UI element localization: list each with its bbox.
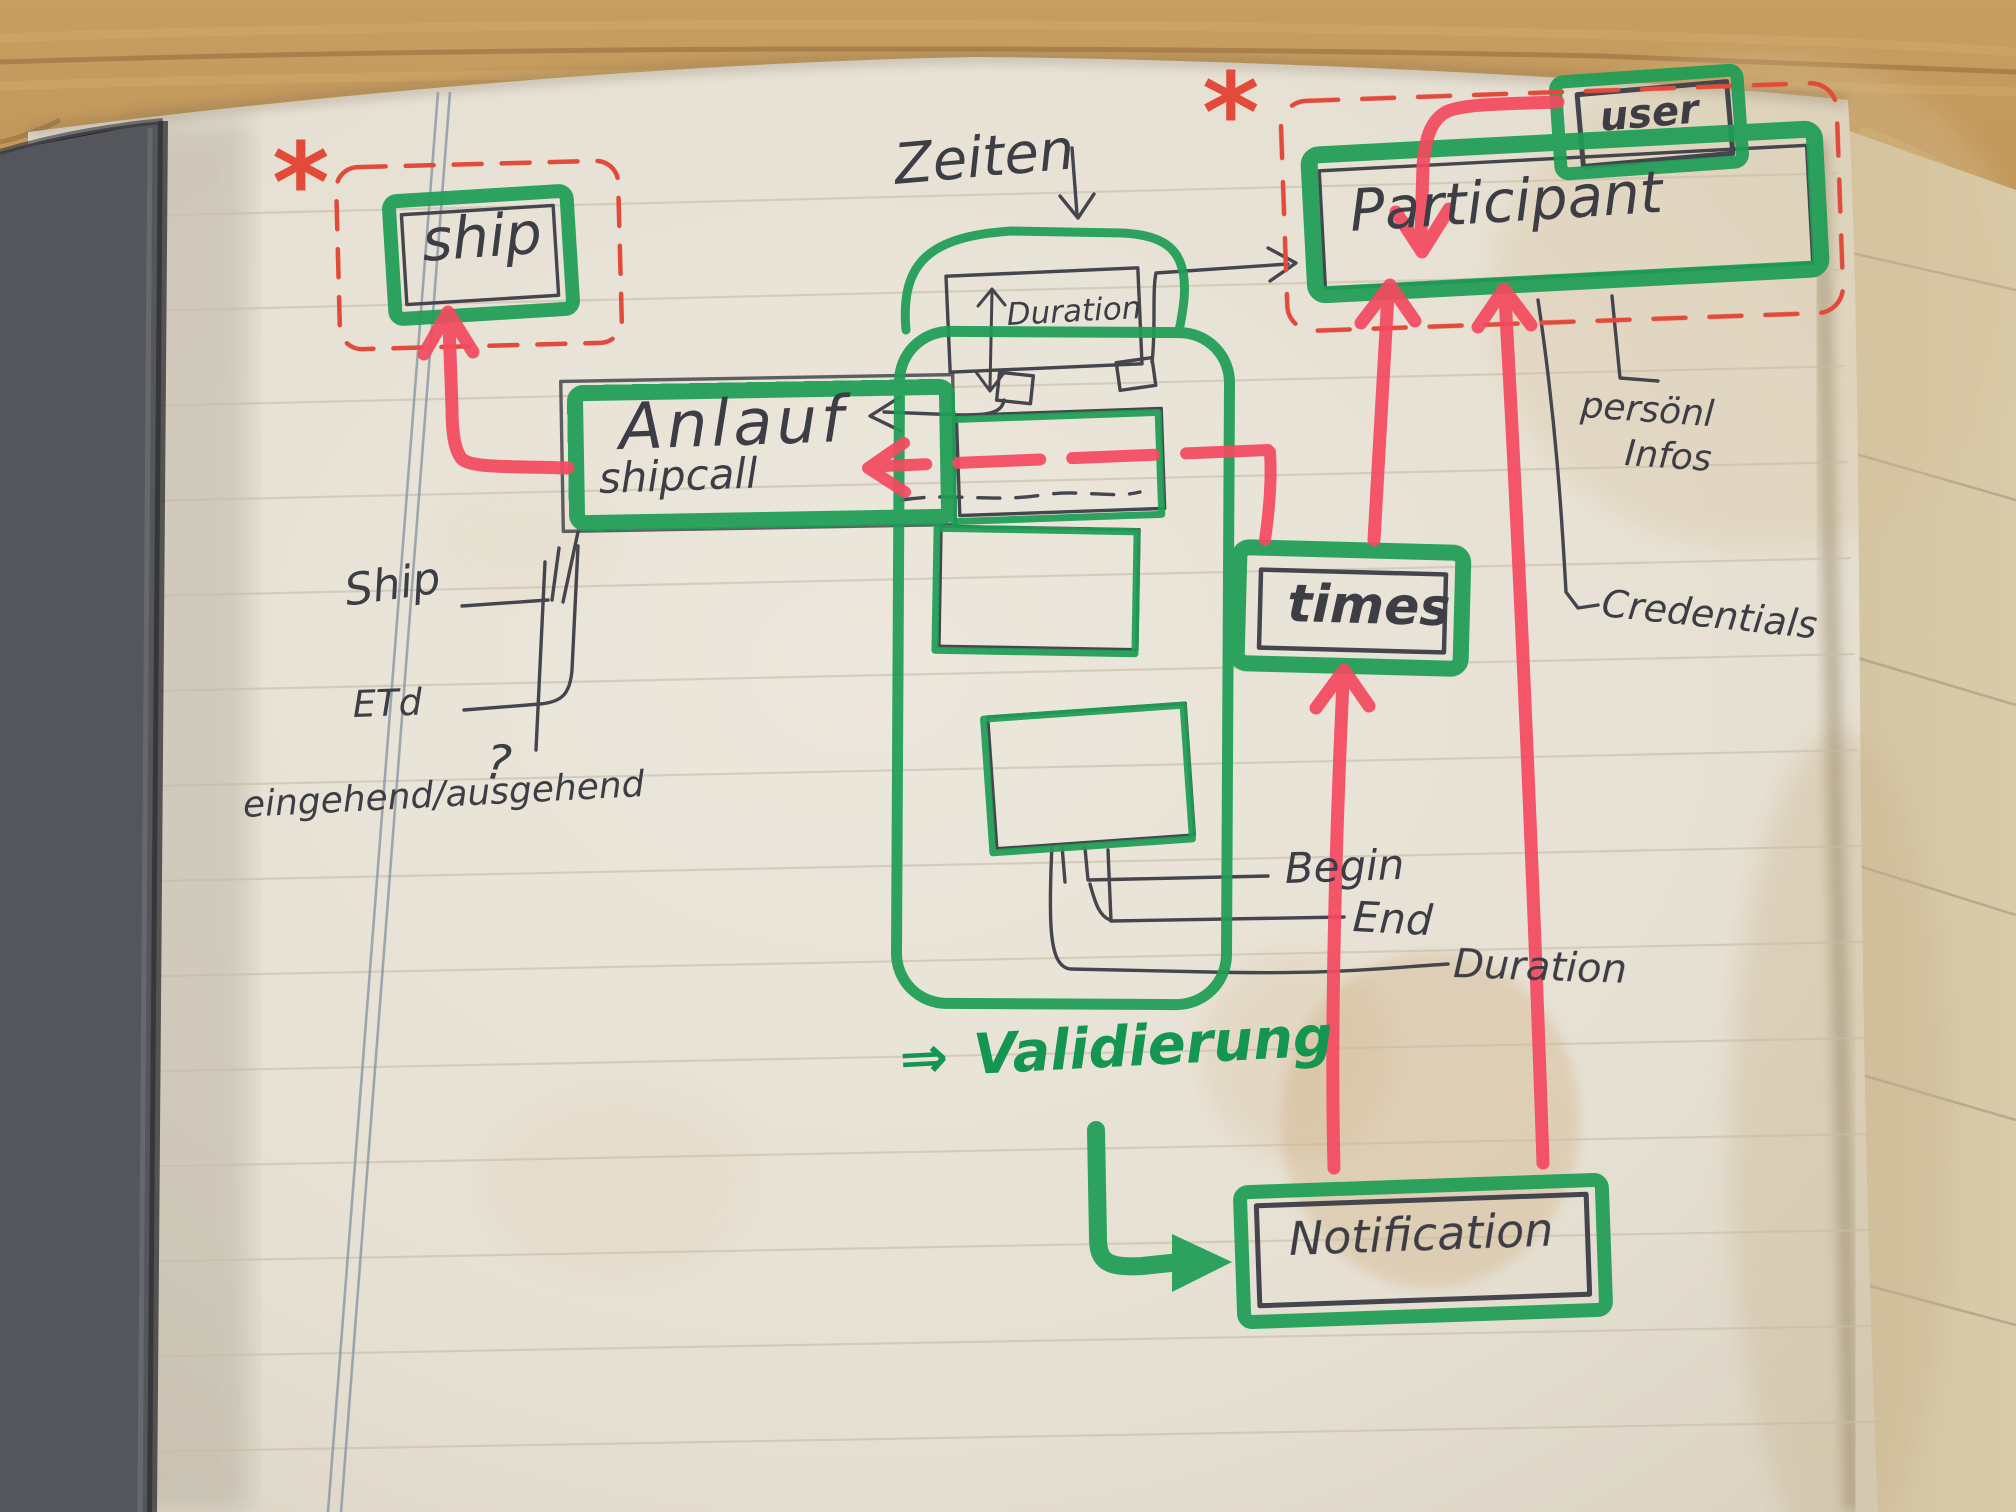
asterisk-right: * <box>1202 58 1260 168</box>
ship-entity-label: ship <box>420 204 544 270</box>
asterisk-left: * <box>272 128 330 238</box>
notebook-photo: ship Anlauf shipcall Participant user ti… <box>0 0 2016 1512</box>
notification-entity-label: Notification <box>1288 1207 1554 1262</box>
persoenl-label: persönl <box>1579 388 1715 433</box>
participant-entity-label: Participant <box>1348 163 1664 240</box>
duration-box-label: Duration <box>1006 293 1142 331</box>
zeiten-label: Zeiten <box>892 122 1076 193</box>
question-mark-label: ? <box>483 738 513 788</box>
ship-attr-label: Ship <box>342 557 443 614</box>
notebook-cover <box>0 121 163 1512</box>
begin-attr-label: Begin <box>1284 844 1405 890</box>
infos-label: Infos <box>1623 436 1712 478</box>
shipcall-entity-label: shipcall <box>598 452 758 500</box>
end-attr-label: End <box>1352 896 1434 942</box>
etd-attr-label: ETd <box>352 684 423 723</box>
duration-attr-label: Duration <box>1453 944 1628 990</box>
times-entity-label: times <box>1287 578 1451 634</box>
user-entity-label: user <box>1598 89 1700 137</box>
validierung-arrow-glyph: ⇒ <box>898 1027 950 1087</box>
